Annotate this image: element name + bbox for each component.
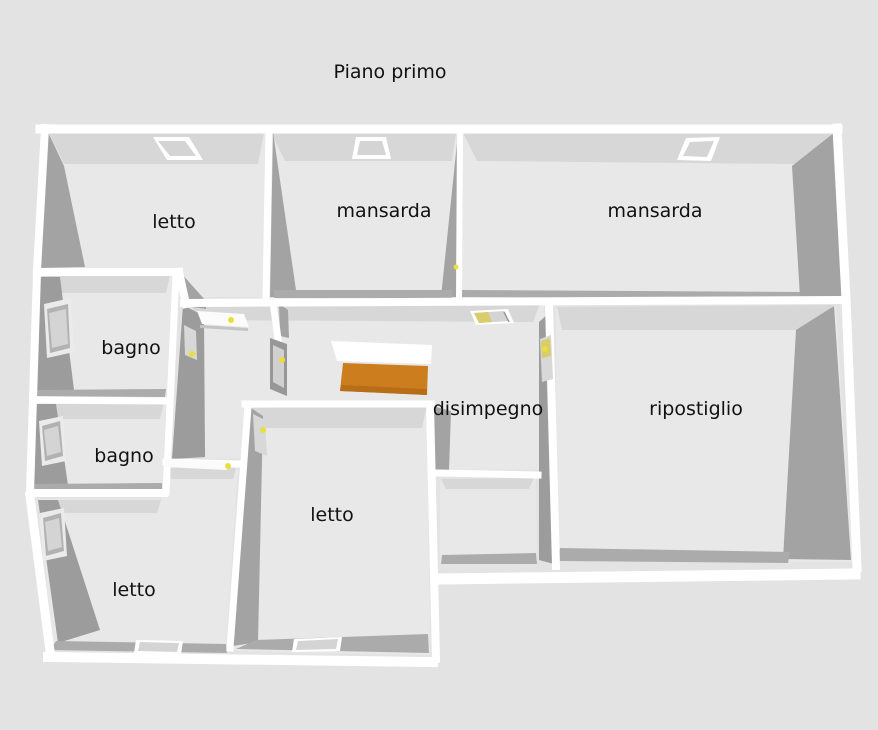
floor-small-room (440, 478, 537, 563)
page-title: Piano primo (334, 61, 447, 83)
room-label-mansarda-right: mansarda (608, 200, 703, 222)
floor-plan-page: Piano primo lettomansardamansardabagnoba… (0, 0, 878, 730)
room-label-bagno-2: bagno (94, 445, 153, 467)
room-label-letto-bottom-left: letto (112, 579, 156, 601)
room-label-ripostiglio: ripostiglio (649, 398, 743, 420)
staircase (331, 341, 432, 395)
door-letto-bottom-center (253, 414, 267, 456)
floor-plan-drawing (0, 0, 878, 730)
stairwell-ledge (331, 341, 432, 364)
room-label-letto-top-left: letto (152, 211, 196, 233)
room-label-disimpegno: disimpegno (433, 398, 544, 420)
room-label-bagno-1: bagno (101, 337, 160, 359)
room-label-mansarda-middle: mansarda (337, 200, 432, 222)
room-label-letto-bottom-center: letto (310, 504, 354, 526)
handle-glint-mansarda (454, 265, 459, 270)
